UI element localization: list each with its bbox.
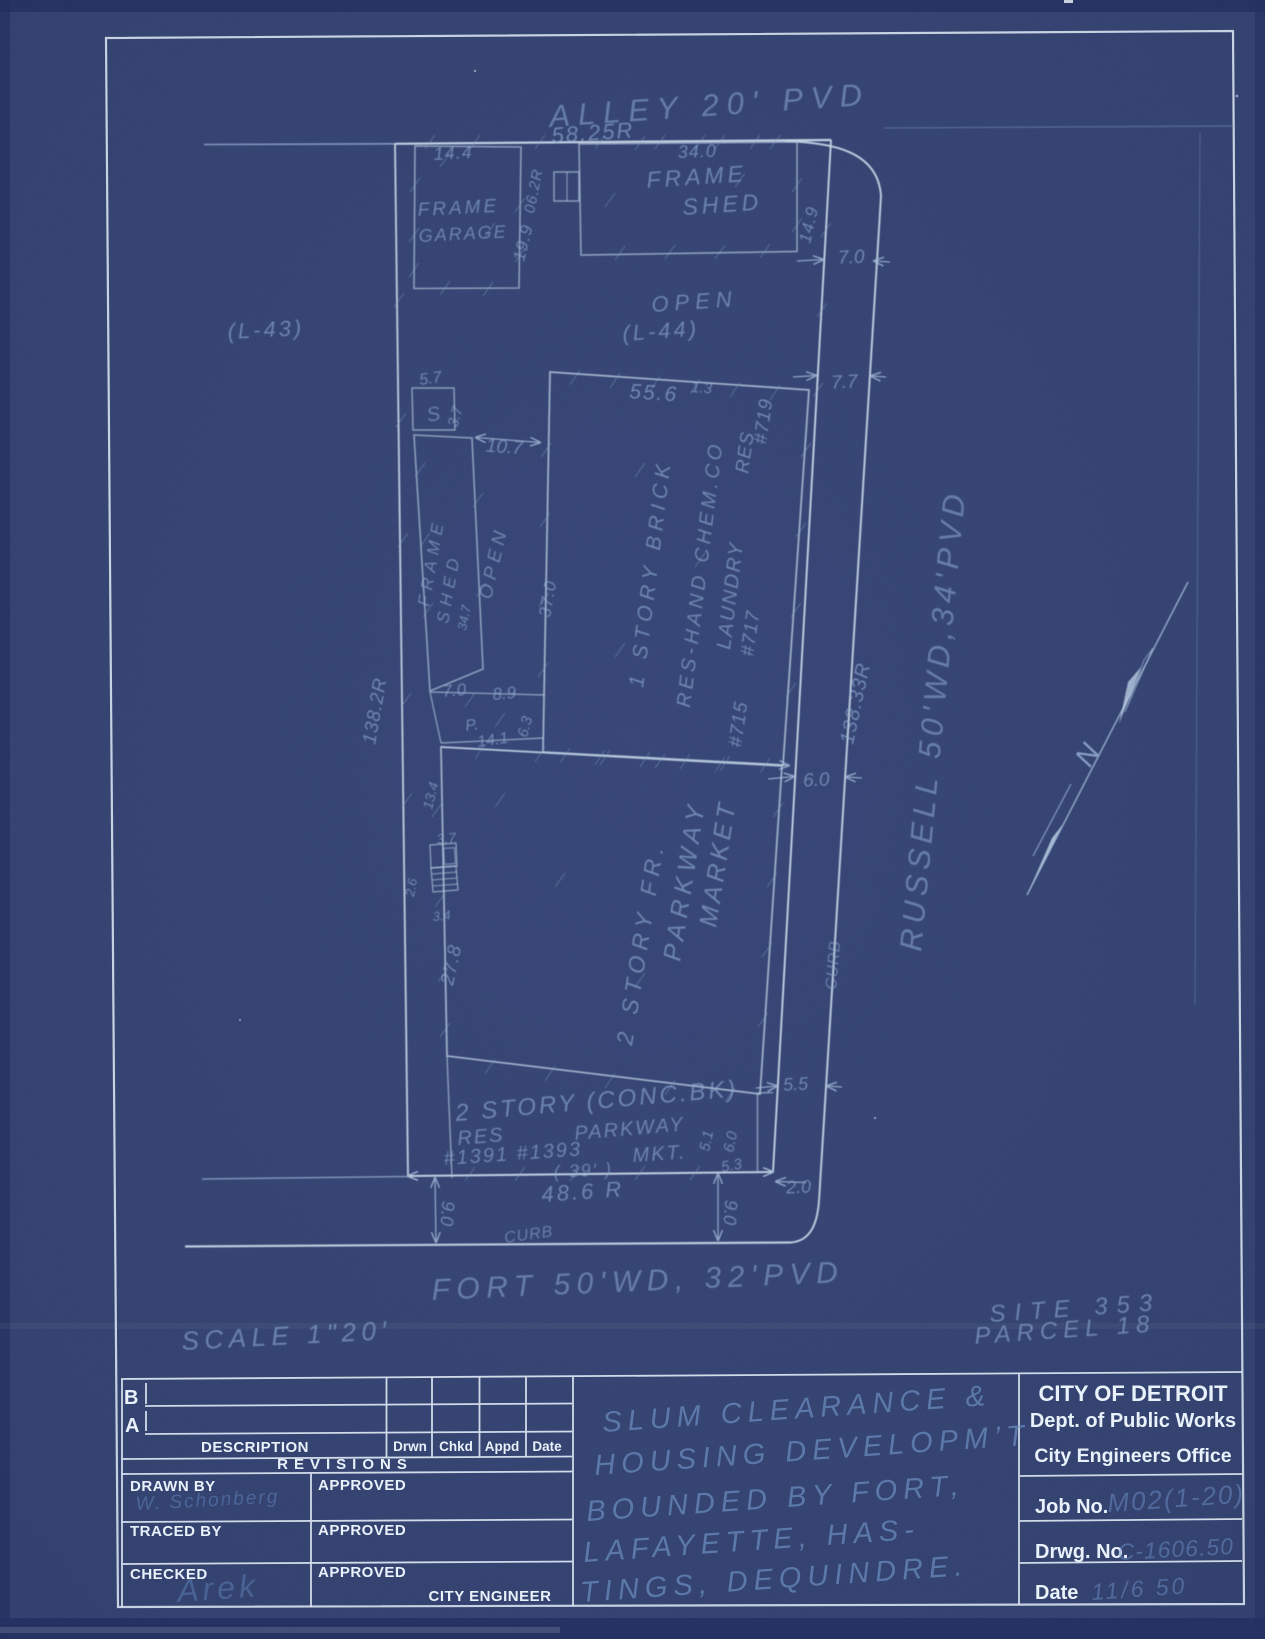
svg-text:APPROVED: APPROVED	[318, 1477, 406, 1494]
svg-text:Arek: Arek	[174, 1567, 260, 1609]
svg-text:6.0: 6.0	[803, 769, 831, 791]
svg-text:Job No.: Job No.	[1035, 1496, 1108, 1518]
svg-text:2.0: 2.0	[785, 1176, 812, 1197]
svg-text:34.0: 34.0	[677, 141, 717, 162]
svg-text:CITY ENGINEER: CITY ENGINEER	[429, 1588, 552, 1605]
svg-text:Drwn: Drwn	[393, 1439, 427, 1454]
svg-text:(L-43): (L-43)	[227, 315, 305, 344]
svg-text:10.7: 10.7	[485, 436, 525, 460]
svg-text:P.: P.	[464, 716, 479, 735]
svg-text:SHED: SHED	[682, 188, 764, 220]
svg-text:B: B	[124, 1387, 138, 1409]
svg-text:Dept. of Public Works: Dept. of Public Works	[1030, 1410, 1236, 1432]
svg-text:1.3: 1.3	[691, 379, 714, 397]
svg-text:DESCRIPTION: DESCRIPTION	[201, 1439, 309, 1456]
svg-text:3.7: 3.7	[436, 829, 458, 847]
svg-text:7.0: 7.0	[838, 247, 866, 269]
svg-text:3.4: 3.4	[432, 907, 451, 924]
svg-text:7.7: 7.7	[831, 371, 860, 393]
svg-text:Drwg. No.: Drwg. No.	[1035, 1541, 1128, 1563]
svg-text:8.9: 8.9	[492, 683, 518, 704]
svg-text:14.4: 14.4	[433, 142, 473, 164]
svg-text:Date: Date	[532, 1439, 562, 1454]
svg-text:Chkd: Chkd	[439, 1439, 473, 1454]
svg-text:Date: Date	[1035, 1582, 1078, 1604]
svg-text:FRAME: FRAME	[417, 196, 499, 221]
svg-text:(L-44): (L-44)	[622, 316, 700, 346]
svg-text:55.6: 55.6	[629, 380, 679, 406]
svg-text:APPROVED: APPROVED	[318, 1564, 406, 1581]
svg-text:5.7: 5.7	[418, 369, 443, 389]
svg-text:REVISIONS: REVISIONS	[277, 1456, 413, 1473]
svg-text:9.0: 9.0	[720, 1199, 742, 1225]
svg-text:9.0: 9.0	[437, 1200, 459, 1226]
svg-text:7.0: 7.0	[442, 680, 468, 701]
svg-text:Appd: Appd	[485, 1439, 520, 1454]
svg-text:MKT.: MKT.	[632, 1141, 687, 1167]
svg-text:CITY OF DETROIT: CITY OF DETROIT	[1038, 1381, 1228, 1406]
svg-text:A: A	[125, 1415, 139, 1437]
svg-text:APPROVED: APPROVED	[318, 1522, 406, 1539]
svg-text:City Engineers Office: City Engineers Office	[1034, 1445, 1231, 1467]
svg-text:TRACED BY: TRACED BY	[130, 1523, 222, 1540]
svg-text:5.5: 5.5	[783, 1073, 810, 1094]
